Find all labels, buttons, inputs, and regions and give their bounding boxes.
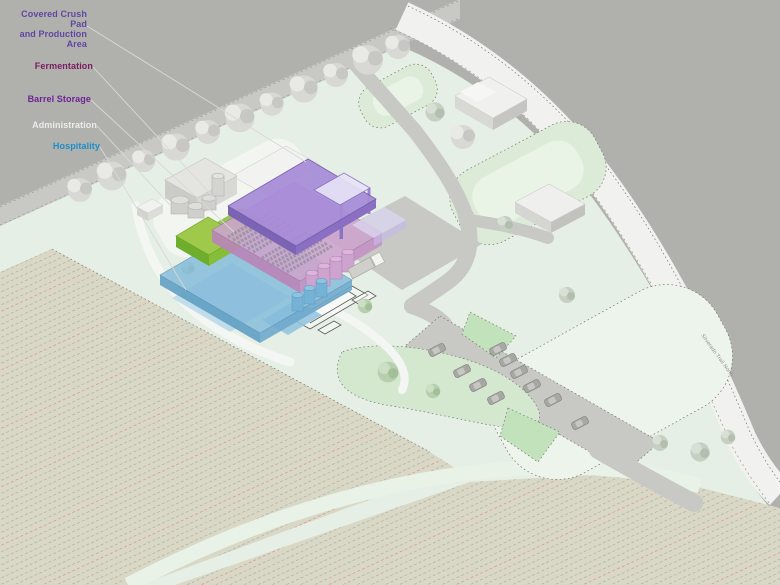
site-plan-canvas: Silverado Trail North: [0, 0, 780, 585]
label-administration: Administration: [0, 120, 97, 130]
label-barrel-storage: Barrel Storage: [0, 94, 91, 104]
label-fermentation: Fermentation: [0, 61, 93, 71]
site-plan-diagram: Silverado Trail North Covered Crush Pad …: [0, 0, 780, 585]
label-covered-crush-pad-line1: Covered Crush Pad: [2, 9, 87, 29]
label-hospitality: Hospitality: [0, 141, 100, 151]
label-covered-crush-pad-line2: and Production Area: [2, 29, 87, 49]
label-covered-crush-pad: Covered Crush Pad and Production Area: [2, 9, 87, 49]
